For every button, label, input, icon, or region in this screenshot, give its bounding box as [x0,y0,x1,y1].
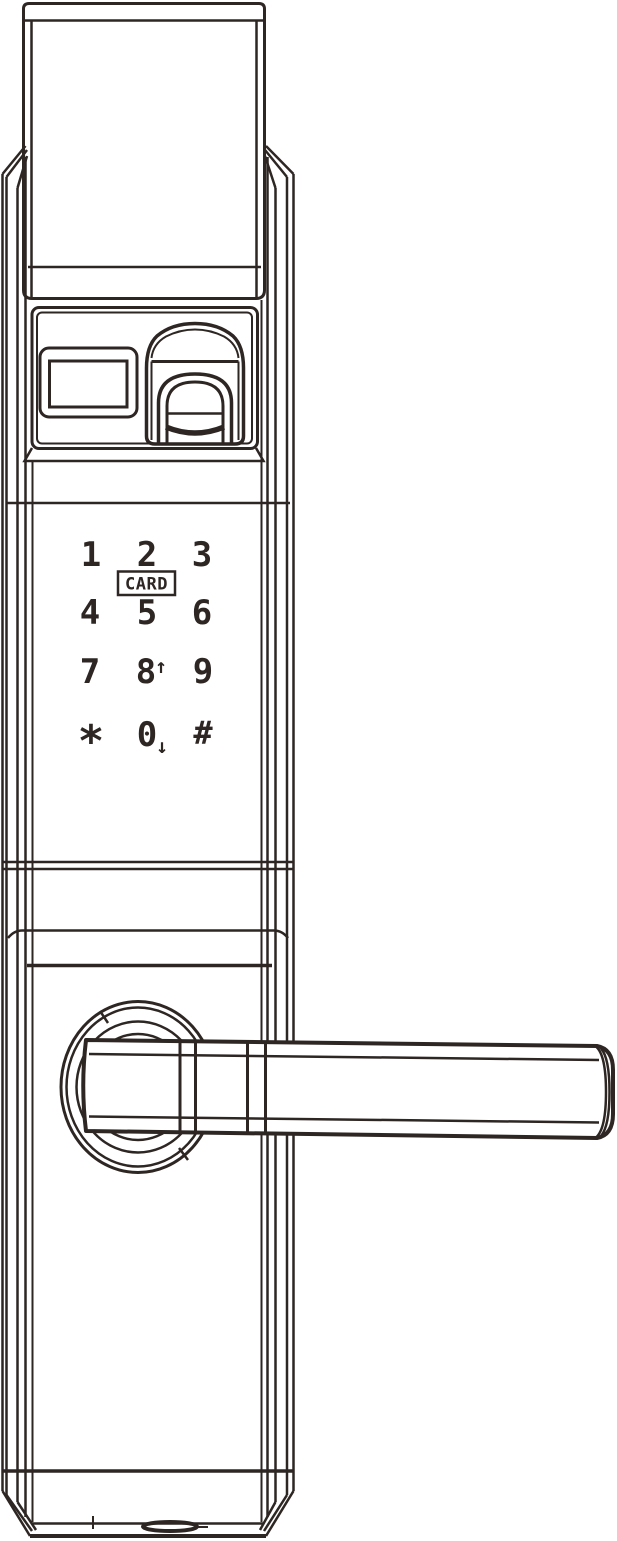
body-right-edge-lines [262,157,294,1522]
key-9: 9 [193,652,213,692]
rose-highlight-tick-top [100,1011,108,1023]
lever-handle [83,1040,613,1138]
bottom-port-slot [143,1522,197,1531]
keypad: 1 2 3 CARD 4 5 6 7 8 ↑ 9 * 0 ↓ # [78,535,214,767]
key-star: * [78,716,105,767]
body-seam-curved [8,931,288,939]
key-7: 7 [80,652,100,692]
top-spindle-plate [24,4,265,299]
display-window [40,348,137,417]
key-1: 1 [81,535,101,575]
lock-drawing-canvas: 1 2 3 CARD 4 5 6 7 8 ↑ 9 * 0 ↓ # [0,0,617,1541]
card-reader-label: CARD [125,575,168,595]
key-5: 5 [137,593,157,633]
fingerprint-cover-arc [152,330,239,359]
display-screen [50,361,128,407]
key-6: 6 [192,593,212,633]
key-hash: # [193,714,213,752]
fingerprint-housing [147,324,244,445]
key-3: 3 [192,535,212,575]
top-right-chamfer [265,146,294,188]
key-0: 0 [137,715,157,755]
key-8: 8 [136,652,156,692]
key-8-up-arrow-icon: ↑ [155,654,167,678]
fingerprint-scan-base [166,427,224,433]
bottom-left-chamfer [3,1491,37,1536]
smart-lock-line-drawing: 1 2 3 CARD 4 5 6 7 8 ↑ 9 * 0 ↓ # [0,0,617,1541]
key-4: 4 [80,593,100,633]
key-0-down-arrow-icon: ↓ [156,734,168,758]
key-2: 2 [137,535,157,575]
bottom-edge-lines [30,1516,266,1536]
fingerprint-reader [147,324,244,445]
body-left-edge-lines [3,157,33,1522]
